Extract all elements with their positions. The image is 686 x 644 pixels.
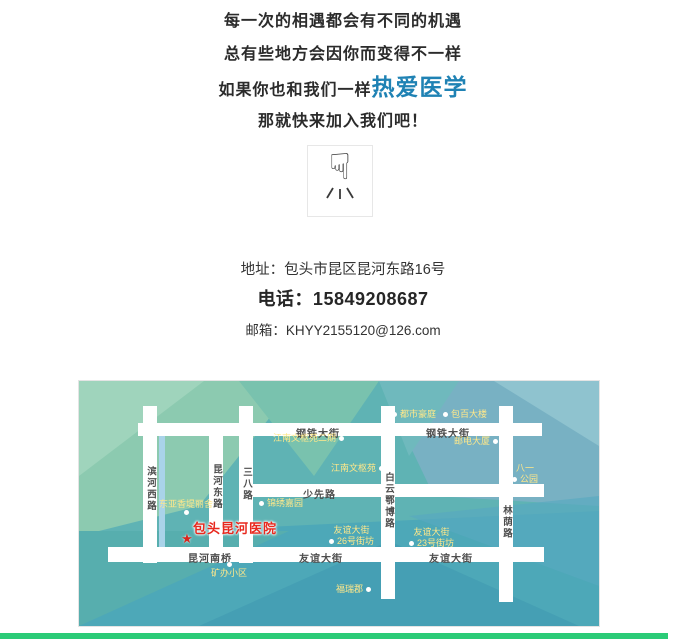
road-label-youyi-right: 友谊大街: [429, 550, 473, 565]
poi-dot: [329, 539, 334, 544]
road-label-binhe-west: 滨河西路: [143, 454, 157, 524]
poi-dot: [443, 412, 448, 417]
poi-dushihaoting: 都市豪庭: [392, 409, 436, 419]
poi-dot: [184, 510, 189, 515]
poi-furuijun: 福瑞郡: [336, 584, 371, 594]
location-map-image[interactable]: 钢铁大街 钢铁大街 少先路 昆河南桥 友谊大街 友谊大街 滨河西路 昆河东路 三…: [78, 380, 600, 627]
poi-bayi-park: 八一 公园: [512, 463, 538, 484]
poi-dot: [259, 501, 264, 506]
poi-dot: [379, 466, 384, 471]
intro-line-3-text: 如果你也和我们一样: [218, 76, 371, 100]
red-star-icon: ★: [175, 531, 199, 547]
poi-youyi-23-block: 友谊大街 23号街坊: [409, 527, 454, 548]
poi-dongya-xiangdi: 东亚香堤丽舍: [159, 499, 213, 515]
bottom-divider-bar: [0, 633, 668, 639]
poi-dot: [493, 439, 498, 444]
poi-youdian-building: 邮电大厦: [454, 436, 498, 446]
poi-baobai-building: 包百大楼: [443, 409, 487, 419]
road-label-youyi-center: 友谊大街: [299, 550, 343, 565]
poi-kuangban-xiaoqu: 矿办小区: [211, 562, 247, 578]
tap-emphasis-lines-icon: [323, 186, 357, 200]
phone-line: 电话：15849208687: [0, 285, 686, 311]
poi-dot: [512, 477, 517, 482]
intro-line-4: 那就快来加入我们吧！: [0, 107, 686, 131]
pointing-hand-image: ☟: [307, 145, 373, 217]
road-label-sanba: 三八路: [239, 459, 253, 509]
poi-youyi-26-block: 友谊大街 26号街坊: [329, 525, 374, 546]
poi-jiangnan: 江南文枢苑: [331, 463, 384, 473]
email-line: 邮箱：KHYY2155120@126.com: [0, 319, 686, 339]
poi-dot: [392, 412, 397, 417]
address-line: 地址：包头市昆区昆河东路16号: [0, 258, 686, 279]
poi-dot: [366, 587, 371, 592]
poi-dot: [339, 436, 344, 441]
poi-jiangnan-phase2: 江南文枢苑二期: [273, 433, 344, 443]
backhand-index-pointing-down-icon: ☟: [329, 148, 351, 188]
road-label-shaoxian: 少先路: [303, 486, 336, 501]
poi-jinxiu-jiayuan: 锦绣嘉园: [259, 498, 303, 508]
road-label-baiyun-ebo: 白云鄂博路: [381, 461, 395, 541]
intro-line-1: 每一次的相遇都会有不同的机遇: [0, 7, 686, 31]
intro-highlight: 热爱医学: [372, 68, 468, 102]
intro-line-3: 如果你也和我们一样热爱医学: [0, 68, 686, 102]
poi-dot: [227, 562, 232, 567]
road-label-linyin: 林荫路: [499, 499, 513, 545]
poi-dot: [409, 541, 414, 546]
intro-line-2: 总有些地方会因你而变得不一样: [0, 40, 686, 64]
